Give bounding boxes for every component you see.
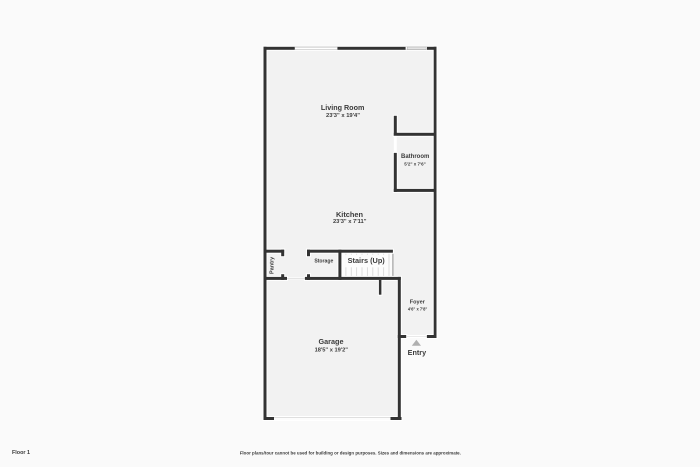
svg-text:Garage: Garage [319, 337, 344, 346]
svg-text:Living Room: Living Room [321, 103, 365, 112]
svg-text:4'6" x 7'8": 4'6" x 7'8" [408, 306, 428, 311]
svg-text:Foyer: Foyer [410, 299, 426, 305]
svg-text:Pantry: Pantry [270, 256, 276, 274]
svg-text:23'3" x 7'11": 23'3" x 7'11" [333, 219, 367, 225]
svg-text:Storage: Storage [314, 258, 333, 264]
svg-text:Floor 1: Floor 1 [12, 450, 30, 456]
svg-text:Stairs (Up): Stairs (Up) [348, 256, 386, 265]
svg-text:Entry: Entry [408, 348, 427, 357]
svg-text:5'2" x 7'6": 5'2" x 7'6" [404, 162, 425, 167]
svg-text:Bathroom: Bathroom [401, 154, 429, 160]
svg-text:23'3" x 19'4": 23'3" x 19'4" [326, 113, 360, 119]
svg-text:18'5" x 19'2": 18'5" x 19'2" [315, 347, 349, 353]
svg-text:Kitchen: Kitchen [336, 210, 364, 219]
svg-text:Floor plans/tour cannot be use: Floor plans/tour cannot be used for buil… [240, 451, 461, 456]
